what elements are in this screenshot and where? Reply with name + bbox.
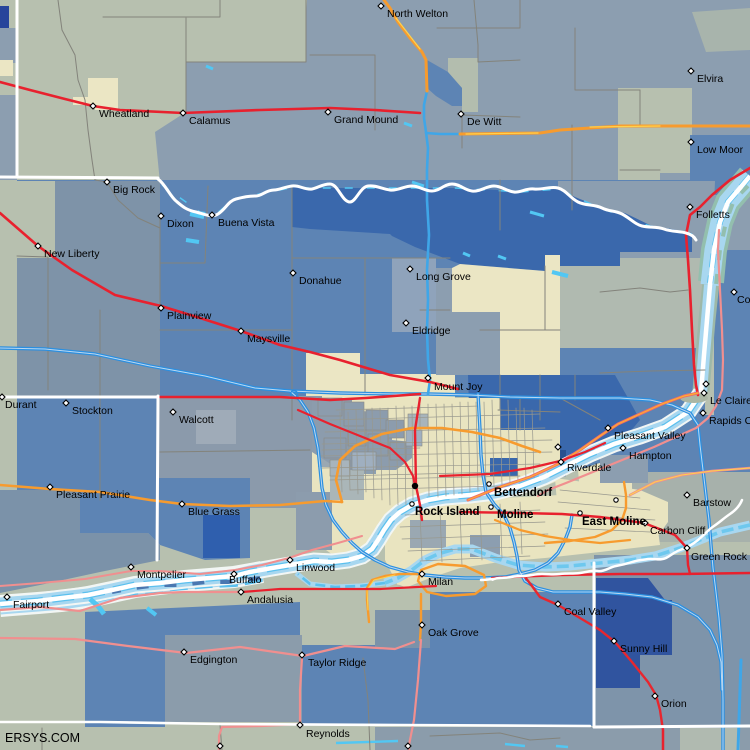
svg-text:Sunny Hill: Sunny Hill [620, 643, 667, 655]
svg-text:Hampton: Hampton [629, 450, 672, 462]
svg-text:ERSYS.COM: ERSYS.COM [5, 731, 80, 745]
svg-text:Orion: Orion [661, 698, 687, 710]
svg-text:Linwood: Linwood [296, 562, 335, 574]
svg-text:Donahue: Donahue [299, 275, 342, 287]
svg-text:Buffalo: Buffalo [229, 574, 262, 586]
svg-text:Walcott: Walcott [179, 414, 214, 426]
svg-text:Taylor Ridge: Taylor Ridge [308, 657, 367, 669]
svg-text:Rock Island: Rock Island [415, 506, 480, 518]
svg-text:Plainview: Plainview [167, 310, 212, 322]
svg-text:New Liberty: New Liberty [44, 248, 100, 260]
svg-text:Oak Grove: Oak Grove [428, 627, 479, 639]
svg-text:Elvira: Elvira [697, 73, 723, 85]
svg-text:Durant: Durant [5, 399, 37, 411]
svg-text:Blue Grass: Blue Grass [188, 506, 240, 518]
svg-text:Grand Mound: Grand Mound [334, 114, 398, 126]
svg-text:Wheatland: Wheatland [99, 108, 149, 120]
svg-text:Calamus: Calamus [189, 115, 230, 127]
svg-text:Fairport: Fairport [13, 599, 49, 611]
svg-text:Coal Valley: Coal Valley [564, 606, 617, 618]
svg-text:Buena Vista: Buena Vista [218, 217, 275, 229]
svg-text:Bettendorf: Bettendorf [494, 487, 552, 499]
svg-text:Le Claire: Le Claire [710, 395, 750, 407]
svg-text:Edgington: Edgington [190, 654, 237, 666]
svg-text:Maysville: Maysville [247, 333, 290, 345]
svg-text:Green Rock: Green Rock [691, 551, 748, 563]
svg-text:Folletts: Folletts [696, 209, 730, 221]
svg-text:Long Grove: Long Grove [416, 271, 471, 283]
svg-text:Eldridge: Eldridge [412, 325, 451, 337]
svg-text:Moline: Moline [497, 509, 533, 521]
svg-text:Mount Joy: Mount Joy [434, 381, 483, 393]
svg-text:Carbon Cliff: Carbon Cliff [650, 525, 705, 537]
svg-text:Rapids City: Rapids City [709, 415, 750, 427]
svg-text:Stockton: Stockton [72, 405, 113, 417]
svg-text:Montpelier: Montpelier [137, 569, 187, 581]
svg-text:Pleasant Valley: Pleasant Valley [614, 430, 686, 442]
svg-text:De Witt: De Witt [467, 116, 502, 128]
svg-text:Reynolds: Reynolds [306, 728, 350, 740]
svg-text:Pleasant Prairie: Pleasant Prairie [56, 489, 130, 501]
svg-text:Dixon: Dixon [167, 218, 194, 230]
svg-text:Low Moor: Low Moor [697, 144, 744, 156]
svg-text:Milan: Milan [428, 576, 453, 588]
svg-text:North Welton: North Welton [387, 8, 448, 20]
svg-text:Barstow: Barstow [693, 497, 731, 509]
svg-text:East Moline: East Moline [582, 516, 646, 528]
svg-text:Big Rock: Big Rock [113, 184, 156, 196]
svg-text:Riverdale: Riverdale [567, 462, 612, 474]
svg-text:Cordova: Cordova [737, 294, 750, 306]
svg-text:Andalusia: Andalusia [247, 594, 293, 606]
